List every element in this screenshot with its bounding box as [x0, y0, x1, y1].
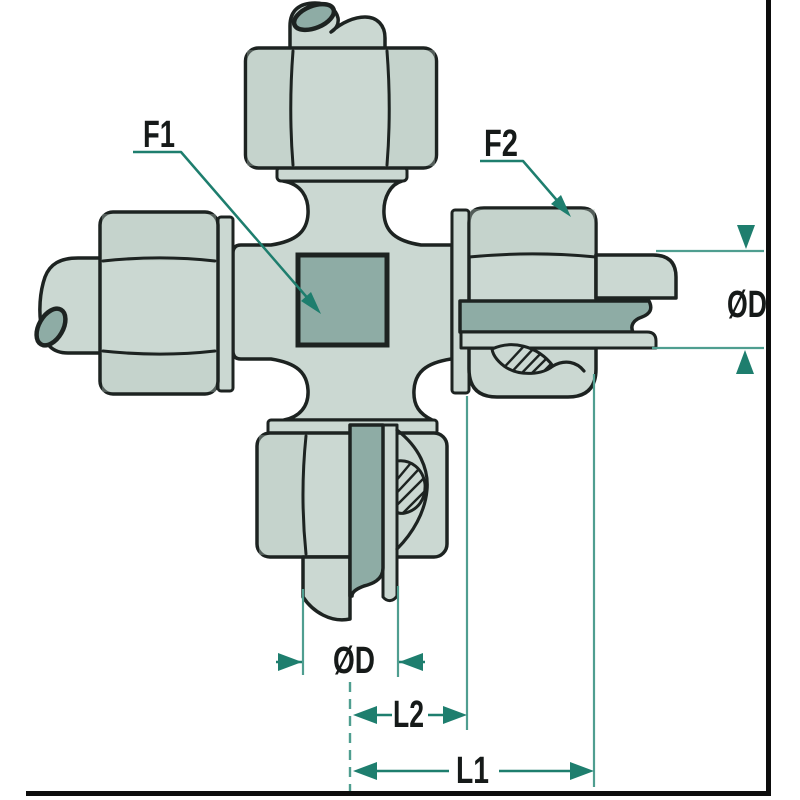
dim-od-bottom: ØD [276, 640, 425, 682]
l2-arrow-left-icon [353, 706, 377, 724]
od-right-label: ØD [727, 284, 767, 326]
f1-label: F1 [143, 114, 175, 156]
bottom-tube-wall [383, 425, 397, 601]
bottom-tube-outer [303, 557, 350, 620]
right-tube-outer [596, 255, 676, 298]
diagram-svg: F1 F2 ØD ØD [0, 0, 800, 800]
od-right-arrow-up-icon [736, 350, 754, 374]
right-port-section [452, 208, 676, 397]
l1-arrow-left-icon [353, 762, 377, 780]
left-tube [31, 258, 106, 353]
l1-arrow-right-icon [570, 762, 594, 780]
frame-border-bottom [26, 791, 771, 796]
l1-label: L1 [456, 750, 489, 792]
od-right-arrow-down-icon [737, 225, 755, 249]
top-nut [246, 48, 437, 168]
l2-arrow-right-icon [443, 706, 467, 724]
f2-callout: F2 [480, 123, 571, 217]
od-bottom-arrow-right-icon [278, 653, 302, 671]
f2-label: F2 [484, 123, 518, 165]
fitting-illustration [31, 0, 676, 620]
dim-l1: L1 [353, 750, 594, 792]
od-bottom-label: ØD [333, 640, 375, 682]
l2-label: L2 [393, 694, 424, 736]
left-nut [100, 212, 218, 394]
bottom-tube-cut-band [350, 425, 383, 596]
bottom-port-section [257, 420, 447, 620]
left-washer [218, 217, 233, 391]
right-tube-bottom-wall [461, 332, 656, 348]
right-tube-cut-band [460, 301, 651, 332]
fitting-technical-diagram: F1 F2 ØD ØD [0, 0, 800, 800]
frame-border-right [766, 0, 771, 796]
dim-l2: L2 [353, 694, 467, 736]
od-bottom-arrow-left-icon [399, 653, 423, 671]
